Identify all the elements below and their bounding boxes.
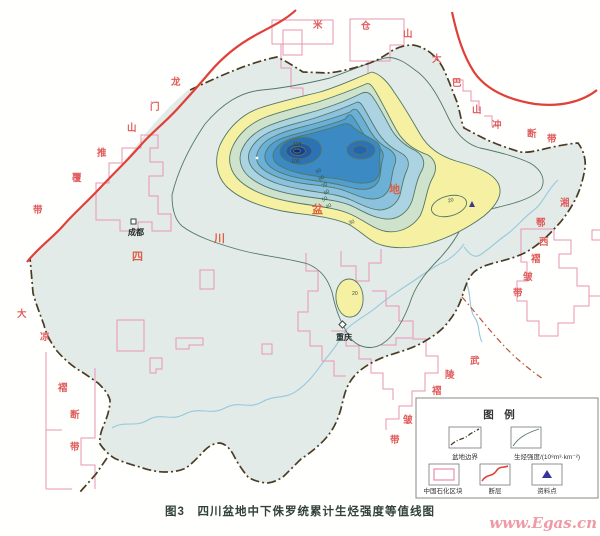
legend: 图 例 盆地边界 生烃强度/(10⁸m³·km⁻²) 中国石化区块 断层 资料点 xyxy=(416,398,598,498)
label-longmenshan-5: 带 xyxy=(33,204,43,216)
label-longmenshan-2: 山 xyxy=(127,122,137,134)
basin-char-1: 川 xyxy=(213,232,225,245)
well-dot xyxy=(256,157,259,160)
label-longmenshan-3: 推 xyxy=(97,147,107,159)
watermark: www.Egas.cn xyxy=(489,514,597,532)
contour-peak-core xyxy=(294,149,301,153)
label-dabashan-1: 巴 xyxy=(452,78,462,89)
label-daliang-3: 断 xyxy=(70,409,80,421)
label-daliang-2: 褶 xyxy=(58,382,68,394)
basin-char-3: 地 xyxy=(389,182,400,196)
label-daliang-1: 凉 xyxy=(40,331,50,343)
contour-chongqing-closed xyxy=(336,279,363,317)
label-micangshan-1: 仓 xyxy=(360,20,371,32)
contour-label-110: 110 xyxy=(293,142,301,148)
contour-east-eye-inner xyxy=(353,146,367,155)
chengdu-marker xyxy=(131,219,136,224)
legend-label-datapoint: 资料点 xyxy=(537,486,557,495)
label-wuling-1: 陵 xyxy=(445,369,455,381)
label-wuling-2: 褶 xyxy=(432,385,442,397)
figure-caption: 图3 四川盆地中下侏罗统累计生烃强度等值线图 xyxy=(165,504,435,518)
basin-char-0: 四 xyxy=(132,250,143,263)
contour-label-100: 100 xyxy=(291,159,300,165)
label-longmenshan-4: 覆 xyxy=(71,172,82,184)
label-dabashan-2: 山 xyxy=(472,104,482,116)
label-xiangexi-3: 褶 xyxy=(531,253,541,265)
legend-label-intensity: 生烃强度/(10⁸m³·km⁻²) xyxy=(514,452,580,461)
label-xiangexi-2: 西 xyxy=(539,237,549,248)
label-dabashan-5: 带 xyxy=(547,133,557,145)
label-xiangexi-5: 带 xyxy=(513,287,523,299)
label-wuling-4: 带 xyxy=(390,434,400,446)
label-dabashan-0: 大 xyxy=(432,53,442,65)
label-xiangexi-1: 鄂 xyxy=(536,218,546,229)
label-dabashan-4: 断 xyxy=(527,128,537,140)
basin-char-2: 盆 xyxy=(311,202,324,216)
legend-label-boundary: 盆地边界 xyxy=(452,452,479,461)
legend-title: 图 例 xyxy=(483,408,515,421)
legend-swatch-boundary xyxy=(449,427,481,448)
label-micangshan-2: 山 xyxy=(403,28,413,40)
label-wuling-3: 皱 xyxy=(402,414,413,426)
label-longmenshan-0: 龙 xyxy=(170,76,181,88)
label-daliang-0: 大 xyxy=(17,308,27,320)
map-canvas: 110 100 90 80 70 60 50 40 30 20 20 米 仓 山… xyxy=(0,0,600,536)
chongqing-label: 重庆 xyxy=(336,332,352,342)
label-dabashan-3: 冲 xyxy=(492,119,502,131)
figure-contour-map: 110 100 90 80 70 60 50 40 30 20 20 米 仓 山… xyxy=(0,0,600,536)
chengdu-label: 成都 xyxy=(128,227,144,237)
label-longmenshan-1: 门 xyxy=(150,101,160,113)
label-xiangexi-0: 湘 xyxy=(560,197,570,209)
label-daliang-4: 带 xyxy=(70,441,80,453)
legend-label-block: 中国石化区块 xyxy=(424,486,464,495)
label-wuling-0: 武 xyxy=(470,355,480,367)
label-xiangexi-4: 皱 xyxy=(522,271,533,283)
legend-label-fault: 断层 xyxy=(489,486,503,495)
contour-label-20-cq: 20 xyxy=(352,291,358,297)
label-micangshan-0: 米 xyxy=(312,19,323,31)
